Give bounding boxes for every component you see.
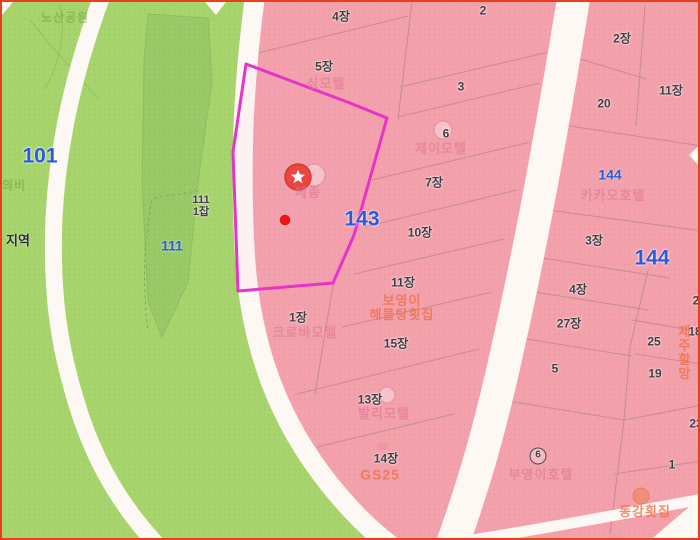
terrain-label: 의비	[2, 180, 26, 193]
red-dot-marker-icon[interactable]	[280, 215, 290, 225]
parcel-label: 15장	[384, 338, 408, 351]
parcel-label: 13장	[358, 394, 382, 407]
parcel-label: 20	[597, 98, 610, 111]
business-label-motel[interactable]: 싱모텔	[307, 77, 346, 91]
parcel-label: 3	[458, 81, 465, 94]
parcel-label: 11장	[659, 85, 683, 98]
zone-label-101: 101	[22, 146, 57, 169]
business-label-hotel[interactable]: 부영이호텔	[509, 468, 574, 482]
parcel-label: 5	[552, 363, 559, 376]
map-canvas[interactable]	[2, 2, 700, 540]
parcel-label-circled-6: 6	[530, 448, 547, 465]
parcel-label: 23	[689, 418, 700, 431]
zone-label-144-sm: 144	[598, 167, 621, 182]
parcel-label: 25	[647, 336, 660, 349]
parcel-label: 27장	[557, 318, 581, 331]
parcel-label: 10장	[408, 227, 432, 240]
zone-label-111: 111	[161, 238, 183, 253]
parcel-label: 19	[648, 368, 661, 381]
district-label: 지역	[6, 234, 30, 248]
parcel-label: 3장	[585, 235, 603, 248]
parcel-label: 5장	[315, 61, 333, 74]
business-label-motel[interactable]: 발리모텔	[358, 407, 410, 421]
business-label-motel[interactable]: 메종	[295, 186, 321, 200]
terrain-label-park: 노산공원	[41, 12, 89, 25]
parcel-label: 2	[693, 295, 700, 308]
parcel-label: 2	[480, 5, 487, 18]
parcel-label: 6	[443, 128, 450, 141]
parcel-label: 111 1잡	[192, 195, 209, 219]
business-label-motel[interactable]: 제이모텔	[415, 142, 467, 156]
parcel-label: 11장	[391, 277, 415, 290]
parcel-label: 1	[669, 459, 676, 472]
parcel-label: 7장	[425, 177, 443, 190]
business-label-hotel[interactable]: 카카오호텔	[581, 189, 646, 203]
parcel-label: 4장	[332, 11, 350, 24]
business-label-motel[interactable]: 크로바모텔	[273, 326, 338, 340]
poi-label-restaurant[interactable]: 제주할망	[679, 325, 692, 381]
parcel-label: 4장	[569, 284, 587, 297]
zone-label-144-lg: 144	[634, 248, 669, 271]
parcel-label: 2장	[613, 33, 631, 46]
parcel-label: 1장	[289, 312, 307, 325]
zone-label-143: 143	[344, 209, 379, 232]
poi-label-restaurant[interactable]: 보영이 해물탕횟집	[370, 294, 435, 322]
poi-label-restaurant[interactable]: 동강횟집	[619, 505, 671, 519]
map-viewport[interactable]: 101 111 143 144 144 4장 2 5장 3 6 2장 20 11…	[0, 0, 700, 540]
parcel-label: 14장	[374, 453, 398, 466]
poi-label-gs25[interactable]: GS25	[360, 467, 400, 482]
